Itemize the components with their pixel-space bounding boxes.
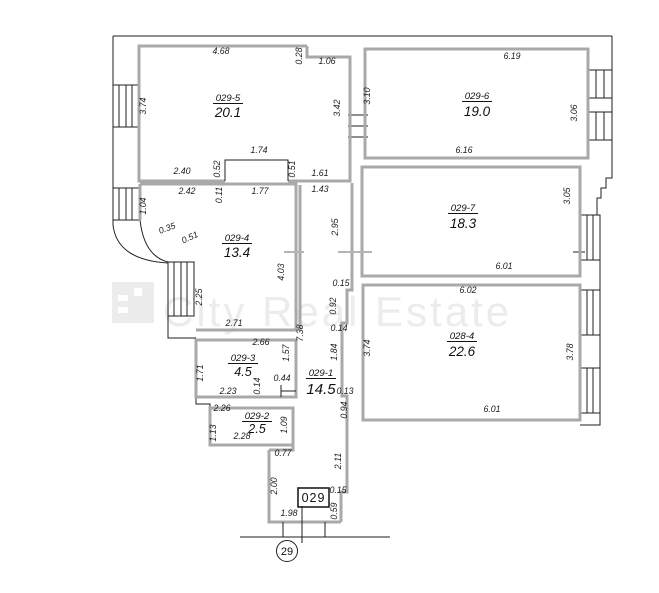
- dimension-label: 2.25: [194, 288, 204, 306]
- room-029-5-walls: [139, 46, 350, 181]
- dimension-label: 0.15: [332, 278, 349, 288]
- dimension-label: 3.05: [562, 187, 572, 204]
- dimension-label: 0.11: [214, 187, 224, 204]
- dimension-label: 0.59: [329, 502, 339, 519]
- window-left-1: [113, 85, 139, 127]
- room-id-label: 029-4: [225, 233, 250, 244]
- room-id-label: 029-6: [465, 91, 490, 102]
- dimension-label: 0.14: [330, 323, 347, 333]
- dimension-label: 0.94: [339, 401, 349, 418]
- dimension-label: 0.77: [274, 448, 292, 458]
- dimension-label: 2.11: [333, 453, 343, 471]
- watermark-logo-notch: [134, 288, 142, 296]
- unit-number-label: 029: [302, 491, 326, 505]
- dimension-label: 2.23: [218, 386, 236, 396]
- room-id-label: 029-5: [216, 93, 241, 104]
- dimension-label: 0.44: [273, 373, 290, 383]
- dimension-label: 1.06: [318, 56, 335, 66]
- window-right-5: [580, 368, 600, 413]
- dimension-label: 1.84: [329, 343, 339, 360]
- room-area-label: 4.5: [234, 365, 251, 379]
- dimension-label: 0.51: [180, 229, 200, 245]
- dimension-label: 1.77: [251, 186, 269, 196]
- entrance-lines: [240, 506, 390, 543]
- watermark-logo-notch: [118, 295, 128, 301]
- dimension-labels: 4.680.281.066.193.743.103.423.062.400.52…: [138, 46, 579, 520]
- dimension-label: 1.43: [311, 184, 328, 194]
- floor-plan-drawing: City Real Estate: [0, 0, 659, 593]
- dimension-label: 6.01: [483, 404, 500, 414]
- dimension-label: 1.13: [208, 424, 218, 441]
- dimension-label: 0.13: [336, 386, 353, 396]
- room-area-label: 22.6: [448, 344, 476, 359]
- dimension-label: 2.71: [224, 318, 242, 328]
- dimension-label: 3.42: [332, 99, 342, 116]
- dimension-label: 2.95: [330, 218, 340, 236]
- dimension-label: 4.03: [276, 263, 286, 280]
- dimension-label: 1.09: [279, 416, 289, 433]
- dimension-label: 0.52: [212, 160, 222, 177]
- room-029-3-notch: [281, 385, 296, 397]
- left-connector-wall: [196, 397, 210, 408]
- dimension-label: 2.00: [269, 477, 279, 495]
- dimension-label: 3.78: [565, 343, 575, 360]
- dimension-label: 2.26: [212, 403, 230, 413]
- dimension-label: 2.66: [251, 337, 269, 347]
- window-right-4: [580, 290, 600, 335]
- window-right-1: [588, 70, 612, 98]
- room-id-label: 029-2: [245, 411, 270, 422]
- dimension-label: 3.74: [362, 339, 372, 356]
- window-right-3: [580, 215, 600, 260]
- room-id-label: 029-1: [309, 368, 334, 379]
- room-id-label: 029-7: [451, 203, 476, 214]
- dimension-label: 0.35: [157, 221, 177, 236]
- entrance-assembly: 029 29: [240, 488, 390, 562]
- room-area-label: 19.0: [464, 104, 491, 119]
- dimension-label: 2.28: [232, 431, 250, 441]
- dimension-label: 6.02: [459, 285, 476, 295]
- room-id-label: 028-4: [450, 331, 475, 342]
- alcove-niche: [225, 160, 288, 181]
- dimension-label: 6.19: [503, 51, 520, 61]
- window-left-2: [113, 188, 139, 220]
- watermark-logo-notch: [118, 307, 128, 313]
- dimension-label: 1.04: [138, 197, 148, 214]
- dimension-label: 0.15: [329, 485, 346, 495]
- dimension-label: 0.92: [328, 297, 338, 314]
- room-area-label: 13.4: [224, 245, 250, 260]
- dimension-label: 2.40: [172, 166, 190, 176]
- dimension-label: 0.14: [252, 377, 262, 394]
- floor-plan: City Real Estate: [0, 0, 659, 593]
- dimension-label: 2.42: [177, 186, 195, 196]
- dimension-label: 4.68: [212, 46, 229, 56]
- dimension-label: 6.16: [455, 145, 472, 155]
- watermark: City Real Estate: [112, 282, 512, 335]
- watermark-logo-icon: [112, 282, 154, 323]
- corridor-right-wall: [341, 183, 352, 522]
- dimension-label: 1.74: [250, 145, 267, 155]
- dimension-label: 3.74: [138, 97, 148, 114]
- room-area-label: 20.1: [214, 105, 241, 120]
- dimension-label: 3.10: [362, 87, 372, 104]
- dimension-label: 0.51: [287, 160, 297, 177]
- site-marker-label: 29: [281, 546, 293, 558]
- dimension-label: 7.38: [295, 324, 305, 341]
- room-id-label: 029-3: [231, 353, 256, 364]
- room-area-label: 18.3: [450, 216, 477, 231]
- window-right-2: [588, 112, 612, 140]
- dimension-label: 3.06: [569, 104, 579, 121]
- dimension-label: 1.98: [280, 508, 297, 518]
- dimension-label: 6.01: [495, 261, 512, 271]
- dimension-label: 1.57: [281, 343, 291, 361]
- dimension-label: 1.61: [311, 168, 328, 178]
- dimension-label: 1.71: [195, 364, 205, 381]
- dimension-label: 0.28: [294, 47, 304, 64]
- room-area-label: 14.5: [306, 381, 336, 398]
- walls: [139, 46, 588, 522]
